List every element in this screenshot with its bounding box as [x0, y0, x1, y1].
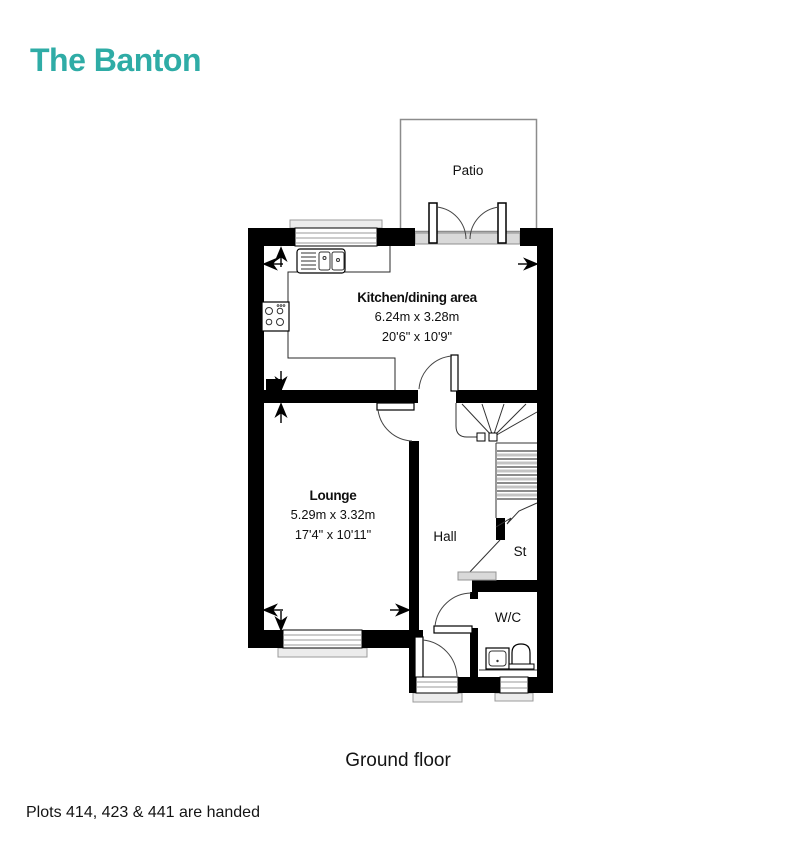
kitchen-window	[295, 228, 377, 246]
kitchen-size-imperial: 20'6" x 10'9"	[357, 327, 477, 347]
lounge-door	[377, 403, 414, 441]
store-label: St	[514, 544, 527, 559]
kitchen-size-metric: 6.24m x 3.28m	[357, 307, 477, 327]
wc-door	[434, 593, 472, 633]
floor-label: Ground floor	[345, 750, 451, 772]
lounge-window	[283, 630, 362, 648]
wc-fixtures	[479, 644, 537, 670]
kitchen-hall-door	[419, 355, 458, 391]
hob-icon	[262, 302, 289, 331]
front-door	[415, 637, 458, 693]
doors	[377, 203, 506, 693]
kitchen-name: Kitchen/dining area	[357, 288, 477, 307]
toilet-icon	[509, 644, 534, 669]
floorplan-drawing	[0, 0, 800, 848]
handed-plots-note: Plots 414, 423 & 441 are handed	[26, 804, 260, 822]
wc-label: W/C	[495, 610, 521, 625]
lounge-name: Lounge	[291, 486, 376, 505]
patio-label: Patio	[453, 163, 484, 178]
basin-icon	[486, 648, 509, 669]
lounge-size-metric: 5.29m x 3.32m	[291, 505, 376, 525]
wc-window	[500, 677, 528, 693]
kitchen-label: Kitchen/dining area 6.24m x 3.28m 20'6" …	[357, 288, 477, 346]
lounge-size-imperial: 17'4" x 10'11"	[291, 525, 376, 545]
kitchen-sink-icon	[297, 249, 345, 273]
floorplan-page: The Banton	[0, 0, 800, 848]
lounge-label: Lounge 5.29m x 3.32m 17'4" x 10'11"	[291, 486, 376, 544]
hall-label: Hall	[433, 529, 456, 544]
